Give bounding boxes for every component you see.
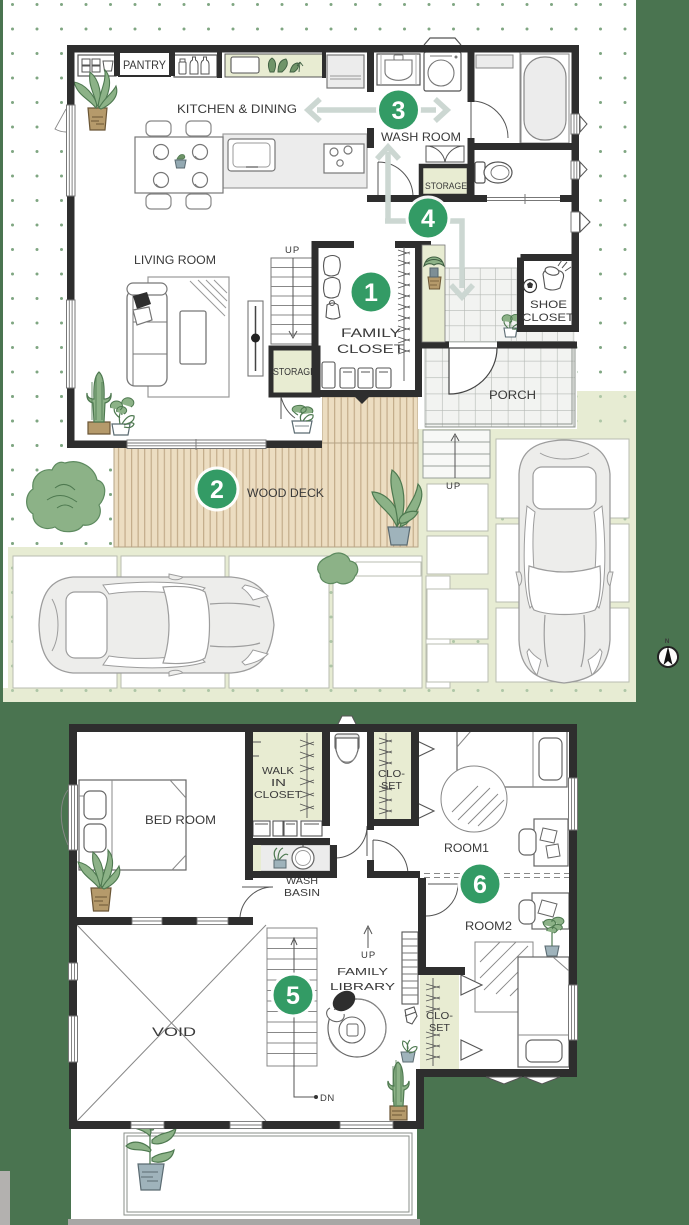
- svg-text:4: 4: [421, 205, 435, 233]
- svg-text:WASH ROOM: WASH ROOM: [381, 130, 461, 144]
- svg-text:ROOM2: ROOM2: [465, 919, 512, 933]
- svg-text:5: 5: [286, 982, 300, 1010]
- svg-text:WALK: WALK: [262, 765, 294, 777]
- svg-text:WOOD DECK: WOOD DECK: [247, 486, 324, 500]
- svg-text:VOID: VOID: [152, 1025, 196, 1039]
- svg-text:CLO-: CLO-: [426, 1010, 454, 1022]
- svg-text:FAMILY: FAMILY: [341, 326, 401, 340]
- svg-text:LIVING ROOM: LIVING ROOM: [134, 253, 216, 267]
- svg-text:LIBRARY: LIBRARY: [330, 981, 395, 993]
- svg-text:BASIN: BASIN: [284, 887, 320, 899]
- svg-text:IN: IN: [271, 777, 286, 789]
- svg-text:UP: UP: [285, 245, 300, 256]
- svg-text:DN: DN: [320, 1093, 335, 1104]
- svg-text:2: 2: [210, 476, 224, 504]
- svg-text:STORAGE: STORAGE: [273, 367, 316, 378]
- svg-text:SET: SET: [429, 1022, 451, 1034]
- svg-text:6: 6: [473, 871, 487, 899]
- svg-text:PANTRY: PANTRY: [123, 58, 166, 72]
- svg-text:BED ROOM: BED ROOM: [145, 813, 216, 827]
- svg-text:KITCHEN & DINING: KITCHEN & DINING: [177, 102, 297, 116]
- svg-text:1: 1: [364, 279, 378, 307]
- svg-text:FAMILY: FAMILY: [337, 966, 388, 978]
- svg-text:SHOE: SHOE: [530, 299, 567, 311]
- svg-text:STORAGE: STORAGE: [425, 181, 467, 192]
- svg-text:CLOSET: CLOSET: [254, 789, 303, 801]
- svg-text:N: N: [665, 638, 670, 645]
- svg-text:UP: UP: [446, 481, 461, 492]
- svg-text:3: 3: [392, 97, 406, 125]
- svg-text:PORCH: PORCH: [489, 388, 536, 402]
- svg-text:CLOSET: CLOSET: [337, 342, 405, 356]
- svg-text:ROOM1: ROOM1: [444, 841, 489, 855]
- svg-text:SET: SET: [381, 780, 403, 792]
- svg-text:CLO-: CLO-: [378, 768, 406, 780]
- svg-text:CLOSET: CLOSET: [522, 312, 574, 324]
- svg-text:UP: UP: [361, 950, 376, 961]
